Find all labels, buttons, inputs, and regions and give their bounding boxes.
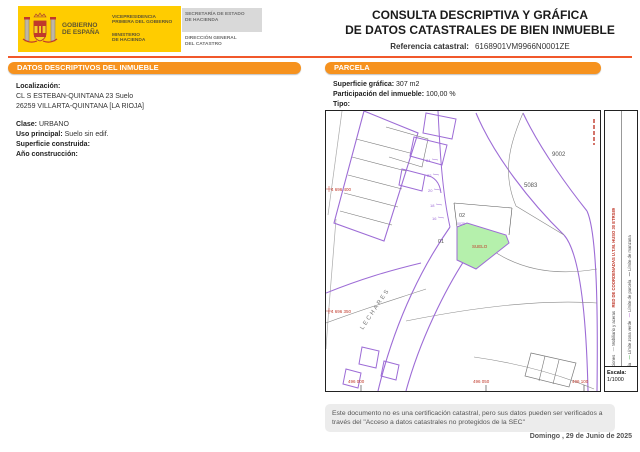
superficie-grafica-row: Superficie gráfica: 307 m2 [333, 80, 603, 90]
cadastral-map[interactable]: 24 22 20 18 16 02 01 5083 9002 SUELO 002… [325, 110, 601, 392]
superficie-construida-row: Superficie construida: [16, 140, 296, 150]
street-number: 16 [432, 216, 437, 221]
referencia-catastral: Referencia catastral:6168901VM9966N0001Z… [330, 42, 630, 51]
spain-coat-of-arms-icon [20, 9, 60, 49]
legend-item: Límite de manzana [627, 235, 632, 271]
document-date: Domingo , 29 de Junio de 2025 [325, 433, 632, 440]
parcela-5083-label: 5083 [524, 183, 538, 189]
legend-item: Mobiliario y aceras [611, 311, 616, 346]
gobierno-de-espana-label: GOBIERNO DE ESPAÑA [62, 22, 108, 36]
referencia-label: Referencia catastral: [390, 42, 469, 51]
suelo-label: SUELO [472, 244, 488, 249]
cadastral-map-svg: 24 22 20 18 16 02 01 5083 9002 SUELO 002… [326, 111, 600, 391]
section-header-parcela: PARCELA [325, 62, 601, 74]
ministry-labels: VICEPRESIDENCIA PRIMERA DEL GOBIERNO MIN… [112, 15, 172, 44]
escala-value: 1/1000 [607, 377, 624, 383]
title-line-2: DE DATOS CATASTRALES DE BIEN INMUEBLE [330, 23, 630, 38]
localizacion-label: Localización: [16, 82, 296, 92]
direccion-general-catastro-label: DIRECCIÓN GENERAL DEL CATASTRO [182, 36, 262, 52]
subparcela-02-label: 02 [459, 213, 465, 219]
localizacion-line1: CL S ESTEBAN-QUINTANA 23 Suelo [16, 92, 296, 102]
clase-row: Clase: URBANO [16, 120, 296, 130]
legend-column-2: — Hidrografía — Límite zona verde — Lími… [621, 111, 637, 391]
anio-construccion-row: Año construcción: [16, 150, 296, 160]
subparcela-01-label: 01 [438, 239, 444, 245]
tipo-row: Tipo: [333, 100, 603, 110]
street-number: 20 [428, 188, 433, 193]
coord-y-top: 4 696 400 [331, 187, 352, 192]
gobierno-logo-band: GOBIERNO DE ESPAÑA VICEPRESIDENCIA PRIME… [18, 6, 181, 52]
parcel-code-label: 0025 [457, 222, 465, 226]
coord-x-mid: 496 050 [473, 379, 490, 384]
parcela-data-block: Superficie gráfica: 307 m2 Participación… [333, 80, 603, 110]
legend-item: Límite zona verde [627, 321, 632, 354]
street-number: 24 [426, 158, 431, 163]
verification-note: Este documento no es una certificación c… [325, 404, 615, 432]
map-scale-box: Escala: 1/1000 [604, 366, 638, 392]
datos-descriptivos-block: Localización: CL S ESTEBAN-QUINTANA 23 S… [16, 82, 296, 160]
note-line-1: Este documento no es una certificación c… [332, 409, 608, 418]
map-legend-sidebar: — Construcciones — Mobiliario y aceras R… [604, 110, 638, 392]
legend-item: Límite de parcela [627, 280, 632, 312]
title-line-1: CONSULTA DESCRIPTIVA Y GRÁFICA [330, 8, 630, 23]
coord-x-right: 496 100 [572, 379, 589, 384]
note-line-2: través del "Acceso a datos catastrales n… [332, 418, 608, 427]
participacion-row: Participación del inmueble: 100,00 % [333, 90, 603, 100]
utm-grid-note: RED DE COORDENADAS U.T.M. HUSO 30 ETRS89 [611, 208, 616, 308]
secretaria-estado-label: SECRETARÍA DE ESTADO DE HACIENDA [182, 8, 262, 32]
street-number: 18 [430, 203, 435, 208]
legend-column-1: — Construcciones — Mobiliario y aceras R… [605, 111, 621, 391]
manzana-9002-label: 9002 [552, 152, 566, 158]
referencia-value: 6168901VM9966N0001ZE [475, 42, 570, 51]
coord-x-left: 496 000 [348, 379, 365, 384]
section-header-datos-descriptivos: DATOS DESCRIPTIVOS DEL INMUEBLE [8, 62, 301, 74]
coord-y-bottom: 4 696 350 [331, 309, 352, 314]
document-title: CONSULTA DESCRIPTIVA Y GRÁFICA DE DATOS … [330, 8, 630, 51]
header-divider [8, 56, 632, 58]
localizacion-line2: 26259 VILLARTA-QUINTANA [LA RIOJA] [16, 102, 296, 112]
street-number: 22 [427, 173, 432, 178]
uso-principal-row: Uso principal: Suelo sin edif. [16, 130, 296, 140]
